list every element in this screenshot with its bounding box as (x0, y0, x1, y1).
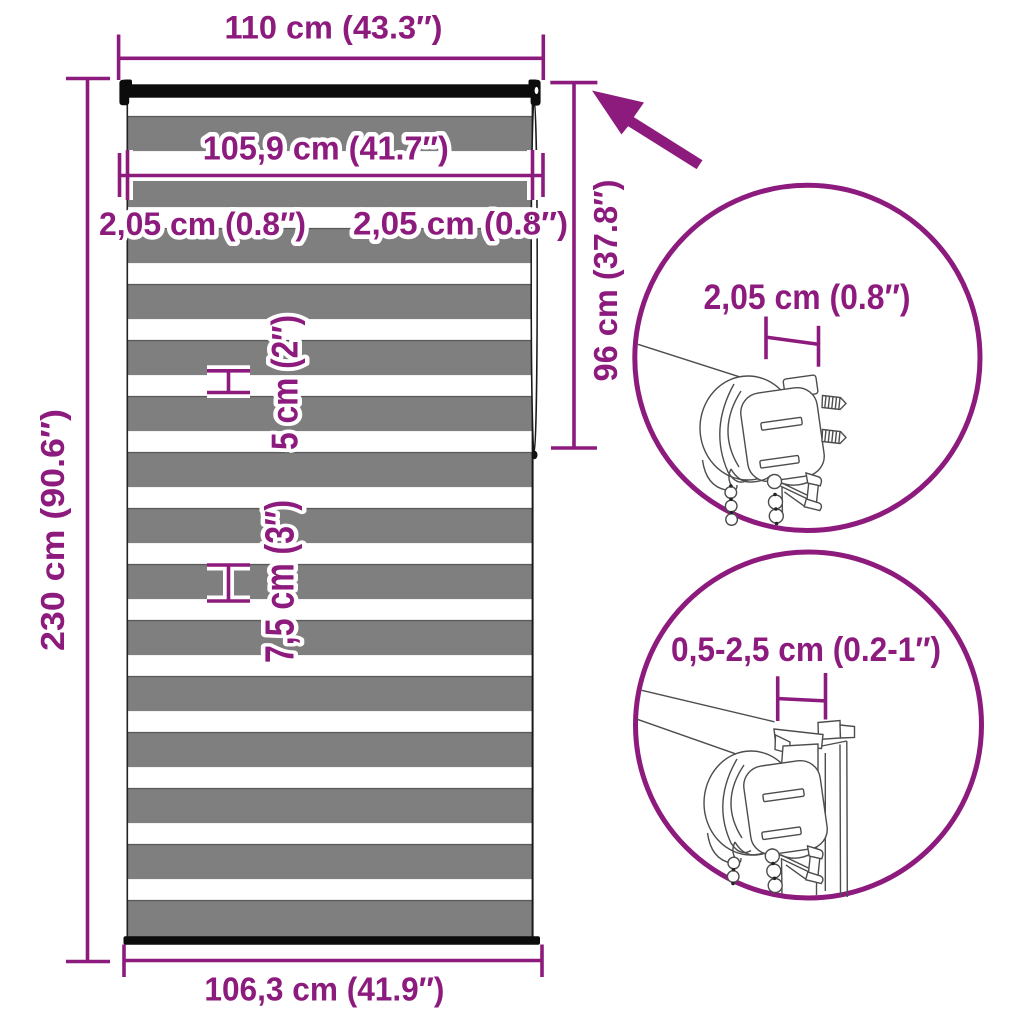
svg-text:96 cm (37.8″): 96 cm (37.8″) (587, 180, 624, 382)
svg-text:5 cm (2″): 5 cm (2″) (264, 315, 306, 450)
svg-text:2,05 cm (0.8″): 2,05 cm (0.8″) (353, 206, 568, 242)
svg-text:106,3 cm (41.9″): 106,3 cm (41.9″) (204, 971, 444, 1008)
svg-text:0,5-2,5 cm (0.2-1″): 0,5-2,5 cm (0.2-1″) (671, 631, 941, 669)
svg-text:2,05 cm (0.8″): 2,05 cm (0.8″) (704, 278, 911, 317)
svg-text:2,05 cm (0.8″): 2,05 cm (0.8″) (99, 206, 306, 242)
svg-text:230 cm (90.6″): 230 cm (90.6″) (34, 409, 71, 651)
svg-text:105,9 cm (41.7″): 105,9 cm (41.7″) (203, 130, 449, 167)
svg-text:7,5 cm (3″): 7,5 cm (3″) (257, 500, 303, 663)
svg-text:110 cm (43.3″): 110 cm (43.3″) (225, 10, 443, 46)
